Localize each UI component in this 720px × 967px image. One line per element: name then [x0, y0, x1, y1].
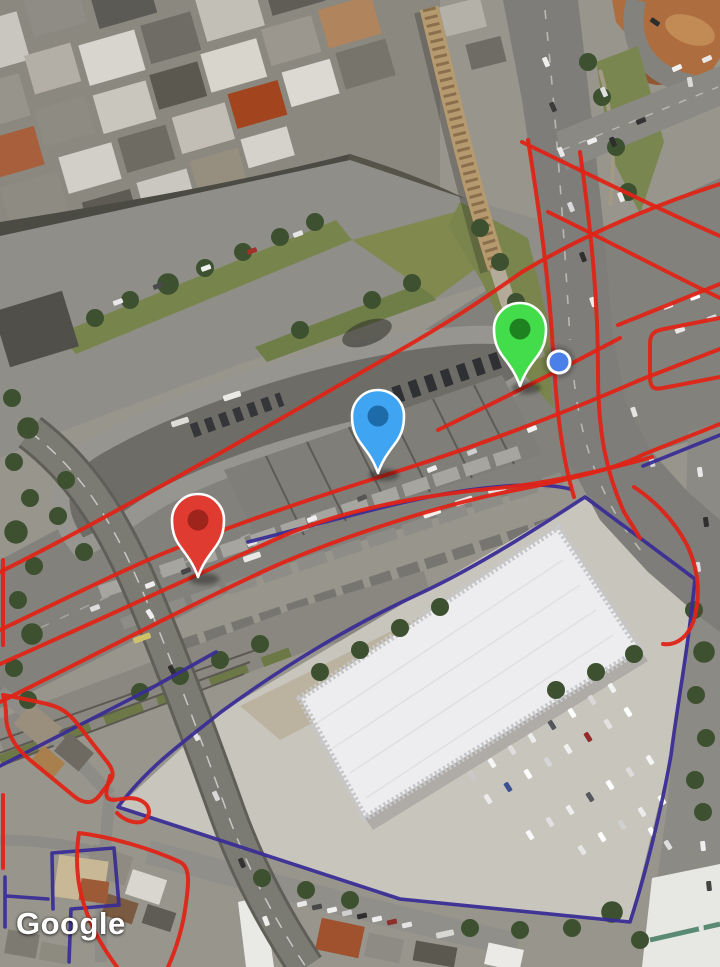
map-canvas[interactable]: Google [0, 0, 720, 967]
satellite-imagery [0, 0, 720, 967]
google-logo[interactable]: Google [16, 906, 126, 942]
location-dot [543, 346, 575, 378]
